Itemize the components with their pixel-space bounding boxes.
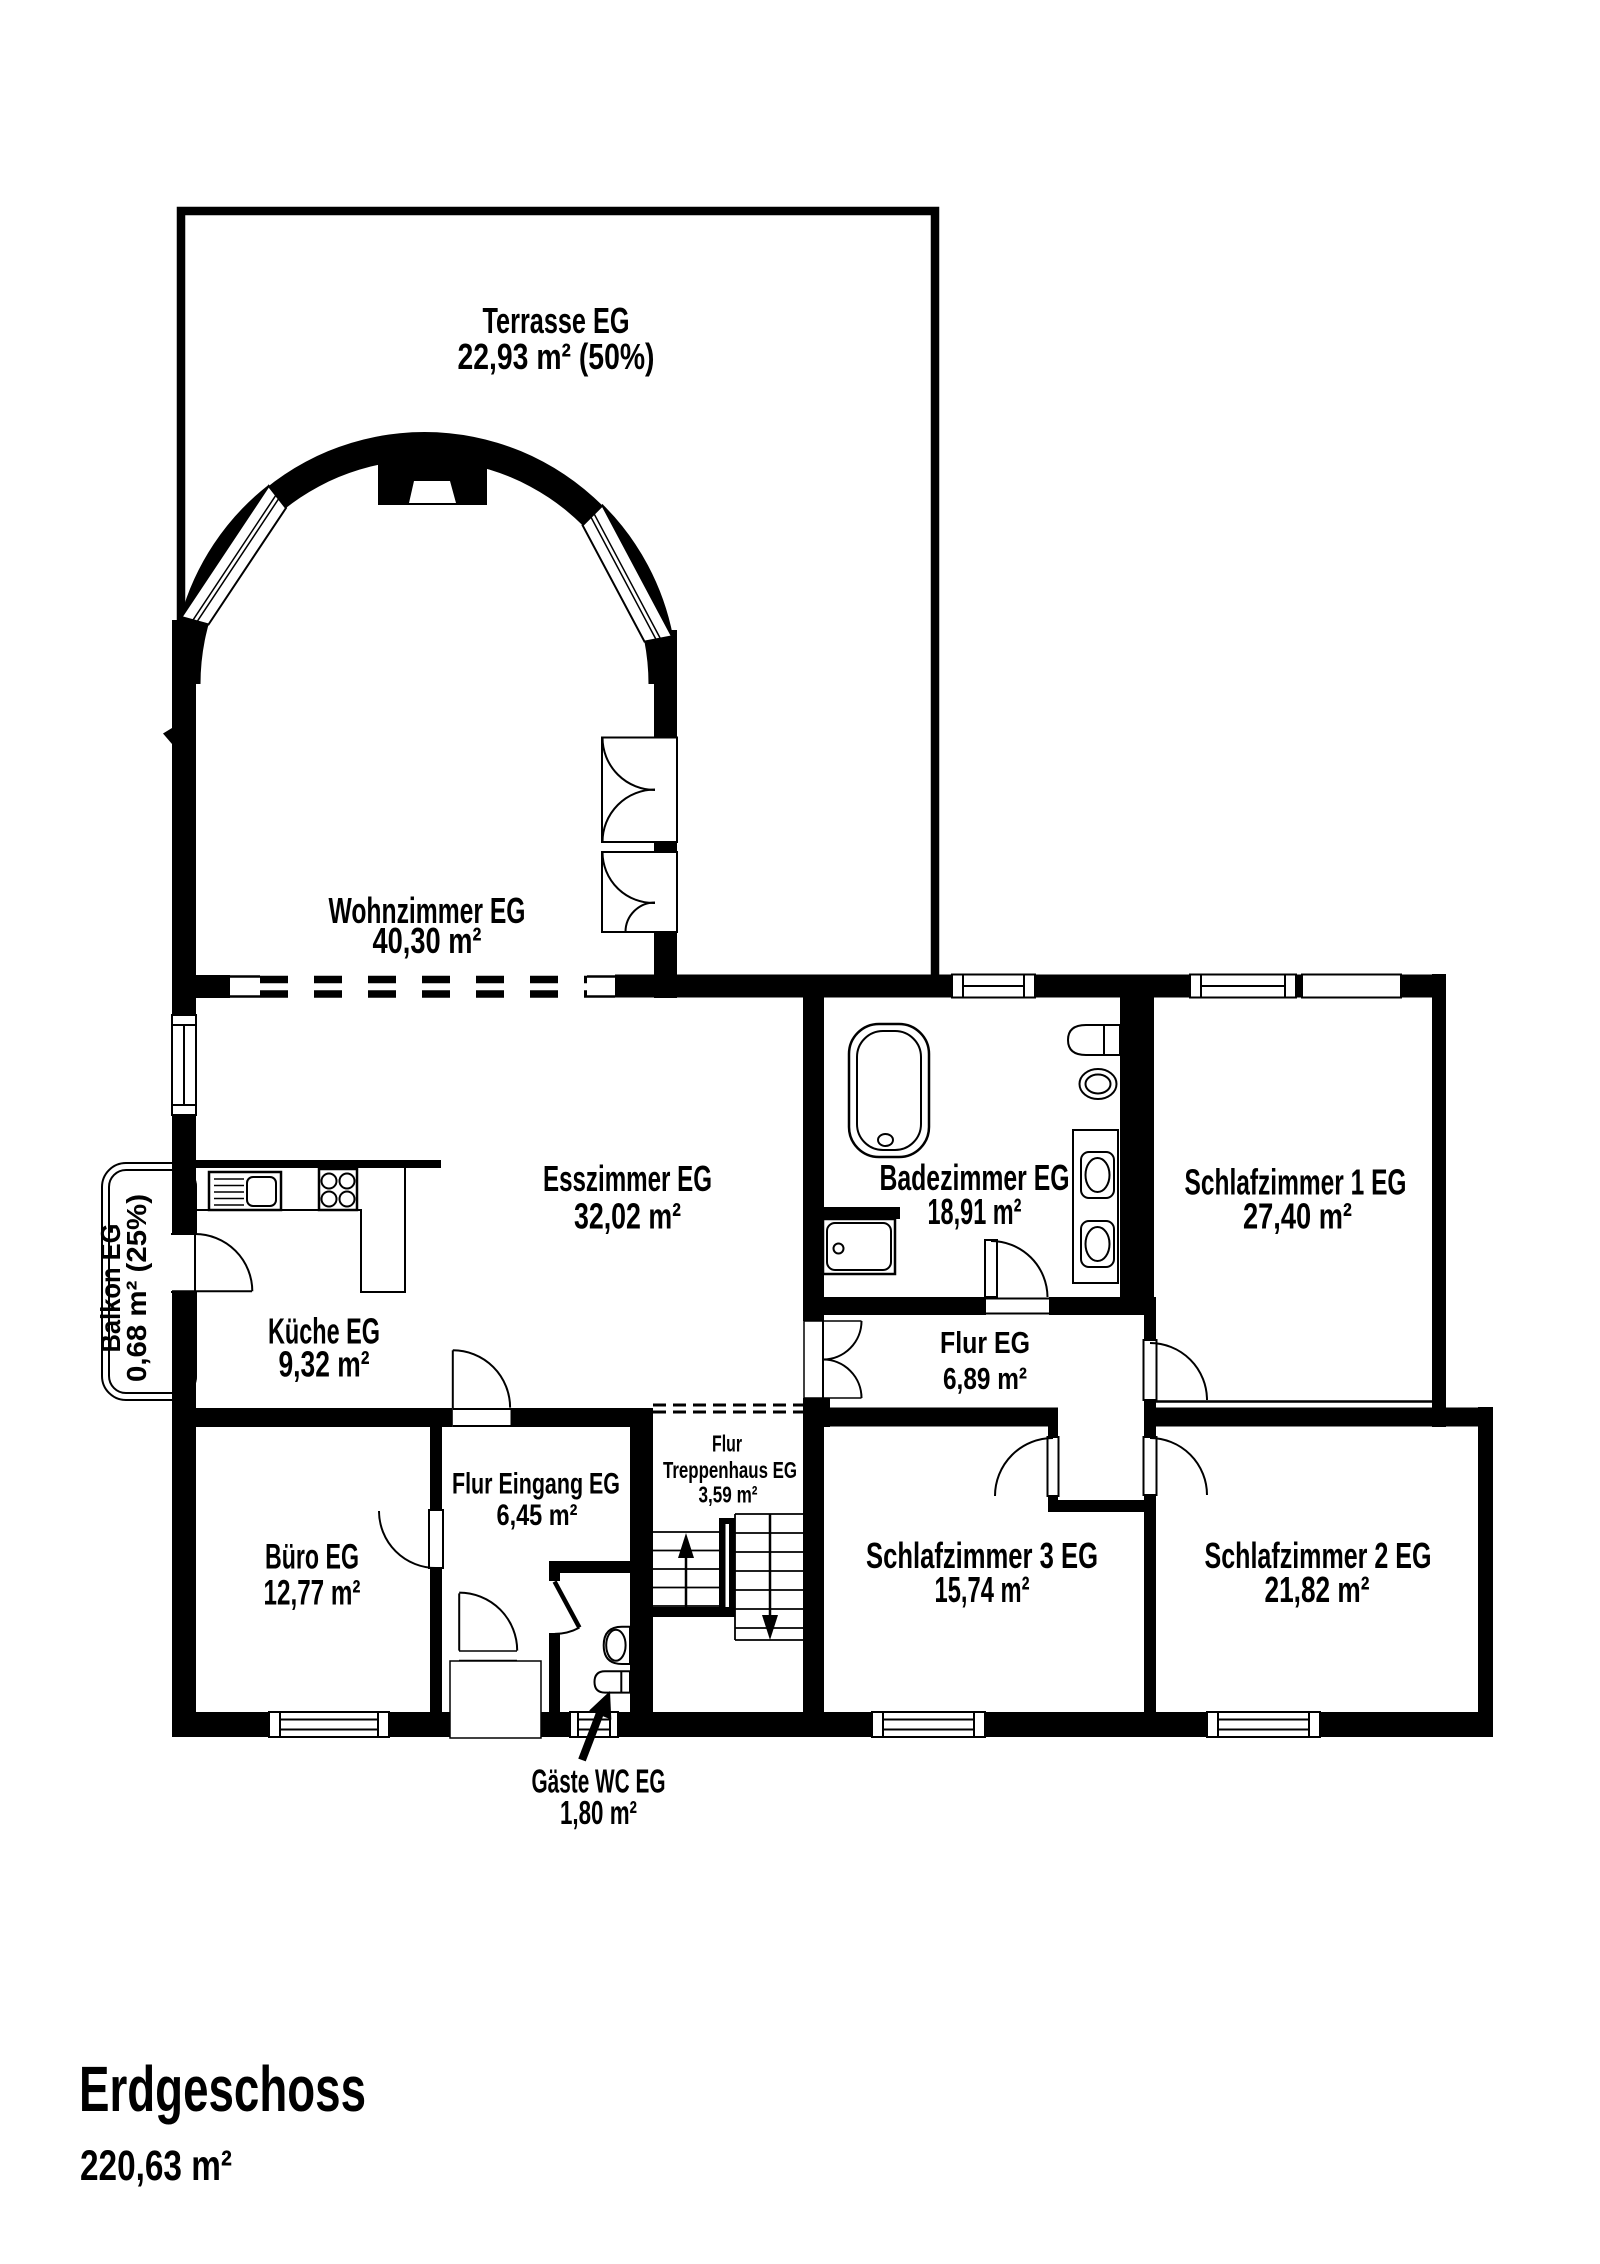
- svg-text:18,91 m²: 18,91 m²: [928, 1191, 1022, 1232]
- svg-text:Büro EG: Büro EG: [265, 1538, 359, 1577]
- svg-text:Terrasse EG: Terrasse EG: [483, 300, 630, 341]
- svg-text:27,40 m²: 27,40 m²: [1243, 1196, 1352, 1237]
- svg-text:Flur: Flur: [712, 1431, 742, 1457]
- svg-text:Treppenhaus EG: Treppenhaus EG: [663, 1457, 797, 1483]
- svg-text:9,32 m²: 9,32 m²: [279, 1344, 370, 1385]
- svg-text:3,59 m²: 3,59 m²: [699, 1482, 758, 1508]
- svg-text:Erdgeschoss: Erdgeschoss: [79, 2053, 366, 2125]
- svg-text:Esszimmer EG: Esszimmer EG: [543, 1158, 712, 1199]
- svg-text:21,82 m²: 21,82 m²: [1265, 1569, 1370, 1610]
- svg-text:6,45 m²: 6,45 m²: [497, 1499, 578, 1532]
- svg-text:Flur EG: Flur EG: [940, 1325, 1030, 1360]
- svg-text:1,80 m²: 1,80 m²: [560, 1794, 637, 1831]
- svg-text:6,89 m²: 6,89 m²: [943, 1361, 1027, 1396]
- svg-text:15,74 m²: 15,74 m²: [935, 1569, 1030, 1610]
- svg-text:12,77 m²: 12,77 m²: [264, 1574, 361, 1613]
- svg-text:40,30 m²: 40,30 m²: [373, 920, 482, 961]
- svg-text:0,68 m² (25%): 0,68 m² (25%): [121, 1194, 152, 1382]
- svg-text:220,63 m²: 220,63 m²: [80, 2142, 232, 2190]
- svg-text:22,93 m² (50%): 22,93 m² (50%): [458, 336, 655, 377]
- svg-text:Flur Eingang EG: Flur Eingang EG: [452, 1468, 620, 1501]
- svg-text:32,02 m²: 32,02 m²: [574, 1196, 681, 1237]
